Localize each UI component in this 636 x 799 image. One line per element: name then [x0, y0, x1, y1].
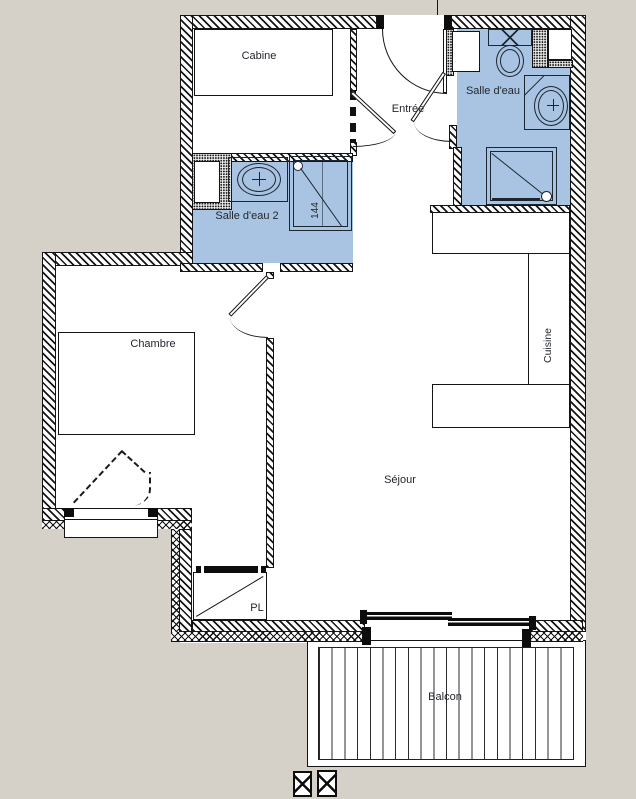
duct-sde: [548, 60, 573, 68]
top-tick-line: [437, 0, 438, 15]
balcony-post-x-icon: [317, 770, 337, 797]
balcony-post-x-icon: [293, 771, 312, 797]
wall-bottom-right: [530, 620, 583, 632]
duct-sde-inner: [548, 29, 572, 60]
kitchen-counter-bottom: [432, 384, 570, 428]
entrance-door-post: [444, 15, 451, 29]
label-entree: Entrée: [381, 103, 435, 116]
wall-sde2-bottom: [180, 263, 263, 272]
sink-sde2-cross: [259, 172, 260, 186]
label-cuisine: Cuisine: [527, 323, 571, 367]
label-salle-deau-2: Salle d'eau 2: [211, 210, 283, 223]
window-sill-line: [64, 519, 158, 520]
wall-lower-left: [179, 529, 192, 632]
kitchen-counter-top: [432, 212, 570, 254]
shower-sde-drain: [541, 191, 552, 202]
sliding-door-cap: [529, 616, 536, 630]
sliding-door-panel: [366, 612, 452, 620]
toilet-cistern-icon: [488, 29, 532, 46]
wall-left-upper: [180, 15, 193, 265]
insulation-strip: [171, 529, 179, 642]
label-pl: PL: [245, 602, 269, 615]
wall-sde2-bottom: [280, 263, 353, 272]
wall-entree-sde: [453, 147, 462, 207]
floor-plan: Cabine Entrée Salle d'eau Salle d'eau 2 …: [0, 0, 636, 799]
wall-bottom-left: [192, 620, 365, 632]
label-chambre: Chambre: [127, 338, 179, 351]
label-sejour: Séjour: [374, 474, 426, 487]
label-salle-deau: Salle d'eau: [462, 85, 524, 98]
entrance-door-leaf: [443, 29, 447, 93]
wall-top-right: [451, 15, 586, 29]
pl-closet-door: [196, 566, 266, 573]
wall-chambre-top: [42, 252, 193, 266]
window-sill: [64, 508, 158, 538]
wall-cabine-entree: [350, 29, 357, 91]
window-post: [64, 508, 74, 517]
window-post: [148, 508, 158, 517]
label-balcon: Balcon: [420, 691, 470, 704]
label-cabine: Cabine: [229, 50, 289, 63]
sliding-door-panel: [448, 618, 532, 626]
wall-chambre-left: [42, 252, 56, 510]
sliding-door-cap: [360, 610, 367, 624]
sink-sde-inner: [538, 90, 564, 122]
duct-sde: [532, 29, 548, 68]
balcony-post: [362, 627, 371, 645]
duct-sde2-inner: [194, 161, 220, 203]
wall-right: [570, 15, 586, 632]
wall-sejour-chambre: [266, 338, 274, 568]
entree-closet: [452, 31, 480, 72]
shower-sde-bottom-line: [492, 198, 540, 200]
label-shower-dimension: 144: [299, 196, 331, 224]
sink-sde-cross: [553, 99, 554, 111]
insulation-strip: [530, 632, 583, 642]
entrance-door-post: [377, 15, 384, 29]
toilet-bowl-inner: [500, 49, 520, 73]
balcony-post: [522, 629, 531, 647]
wall-top-left: [180, 15, 377, 29]
insulation-strip: [171, 632, 365, 642]
